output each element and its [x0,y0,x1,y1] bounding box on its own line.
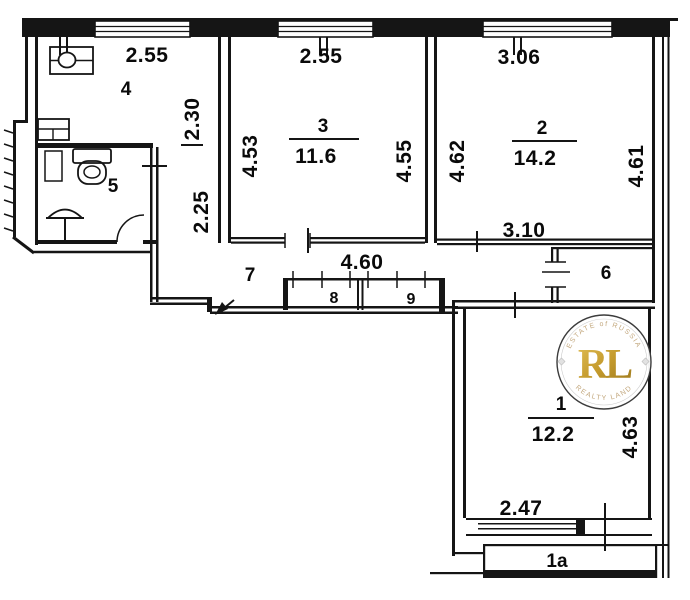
stove-icon [50,47,93,74]
toilet-icon [73,149,111,184]
dim-room2-right: 4.61 [625,145,648,188]
window-room2-icon [483,21,612,37]
room1-number: 1 [556,394,567,415]
room6-number: 6 [601,263,612,284]
window-room3-icon [278,21,373,37]
dim-room1-right: 4.63 [619,416,642,459]
dim-room2-left: 4.62 [446,140,469,183]
dim-room1-bottom: 2.47 [500,497,543,520]
wall-room3-room2 [425,37,437,243]
room4-number: 4 [121,79,132,100]
door-arc-bathroom [117,215,144,242]
dim-room3-left: 4.53 [239,135,262,178]
wall-room3-bottom [231,228,425,253]
dim-room4-width: 2.55 [126,44,169,67]
sink-icon [38,119,69,140]
wall-room4-room3 [218,37,231,243]
room2-number: 2 [537,118,548,139]
dim-room3-right: 4.55 [393,140,416,183]
room6-walls [542,247,652,303]
closet-walls [283,271,445,312]
closet8-number: 8 [330,290,339,307]
room2-area: 14.2 [514,147,557,170]
closet9-number: 9 [407,291,416,308]
window-room1-icon [466,503,652,551]
room1-area: 12.2 [532,423,575,446]
washbasin-icon [46,210,84,241]
dim-room2-width: 3.06 [498,46,541,69]
floor-plan: 2.55 4 2.30 2.55 3 11.6 4.53 4.55 3.06 2… [0,0,690,600]
dim-corridor-length: 4.60 [341,251,384,274]
bath-niche-icon [45,151,62,181]
dim-room2-bottom: 3.10 [503,219,546,242]
balcony-number: 1a [546,551,568,572]
room3-number: 3 [318,116,329,137]
floor-plan-canvas: 2.55 4 2.30 2.55 3 11.6 4.53 4.55 3.06 2… [0,0,690,600]
exterior-wall-right [652,18,670,578]
window-kitchen-icon [95,21,190,37]
dim-room3-width: 2.55 [300,45,343,68]
room3-area: 11.6 [295,145,337,168]
room7-number: 7 [245,265,256,286]
bathroom-walls [35,143,203,302]
room5-number: 5 [108,176,119,197]
dim-room4-depth: 2.30 [181,98,204,141]
watermark-initials: RL [578,342,632,388]
watermark-logo: ESTATE of RUSSIA REALTY LAND RL [557,315,651,409]
dim-corridor-width: 2.25 [190,191,213,234]
